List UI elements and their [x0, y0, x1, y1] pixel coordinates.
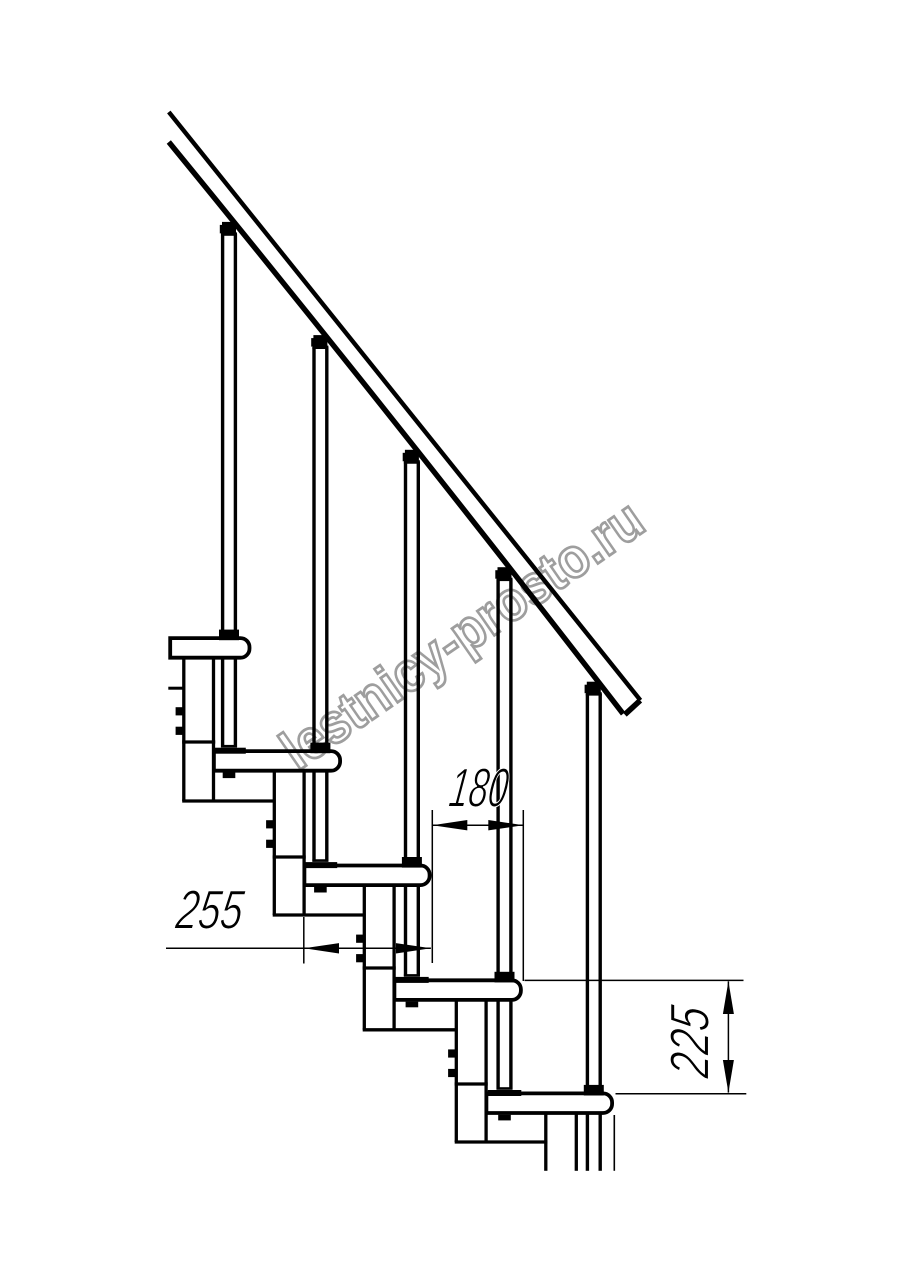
svg-text:180: 180 — [446, 757, 513, 819]
svg-text:255: 255 — [172, 879, 248, 941]
svg-text:225: 225 — [659, 1002, 721, 1082]
